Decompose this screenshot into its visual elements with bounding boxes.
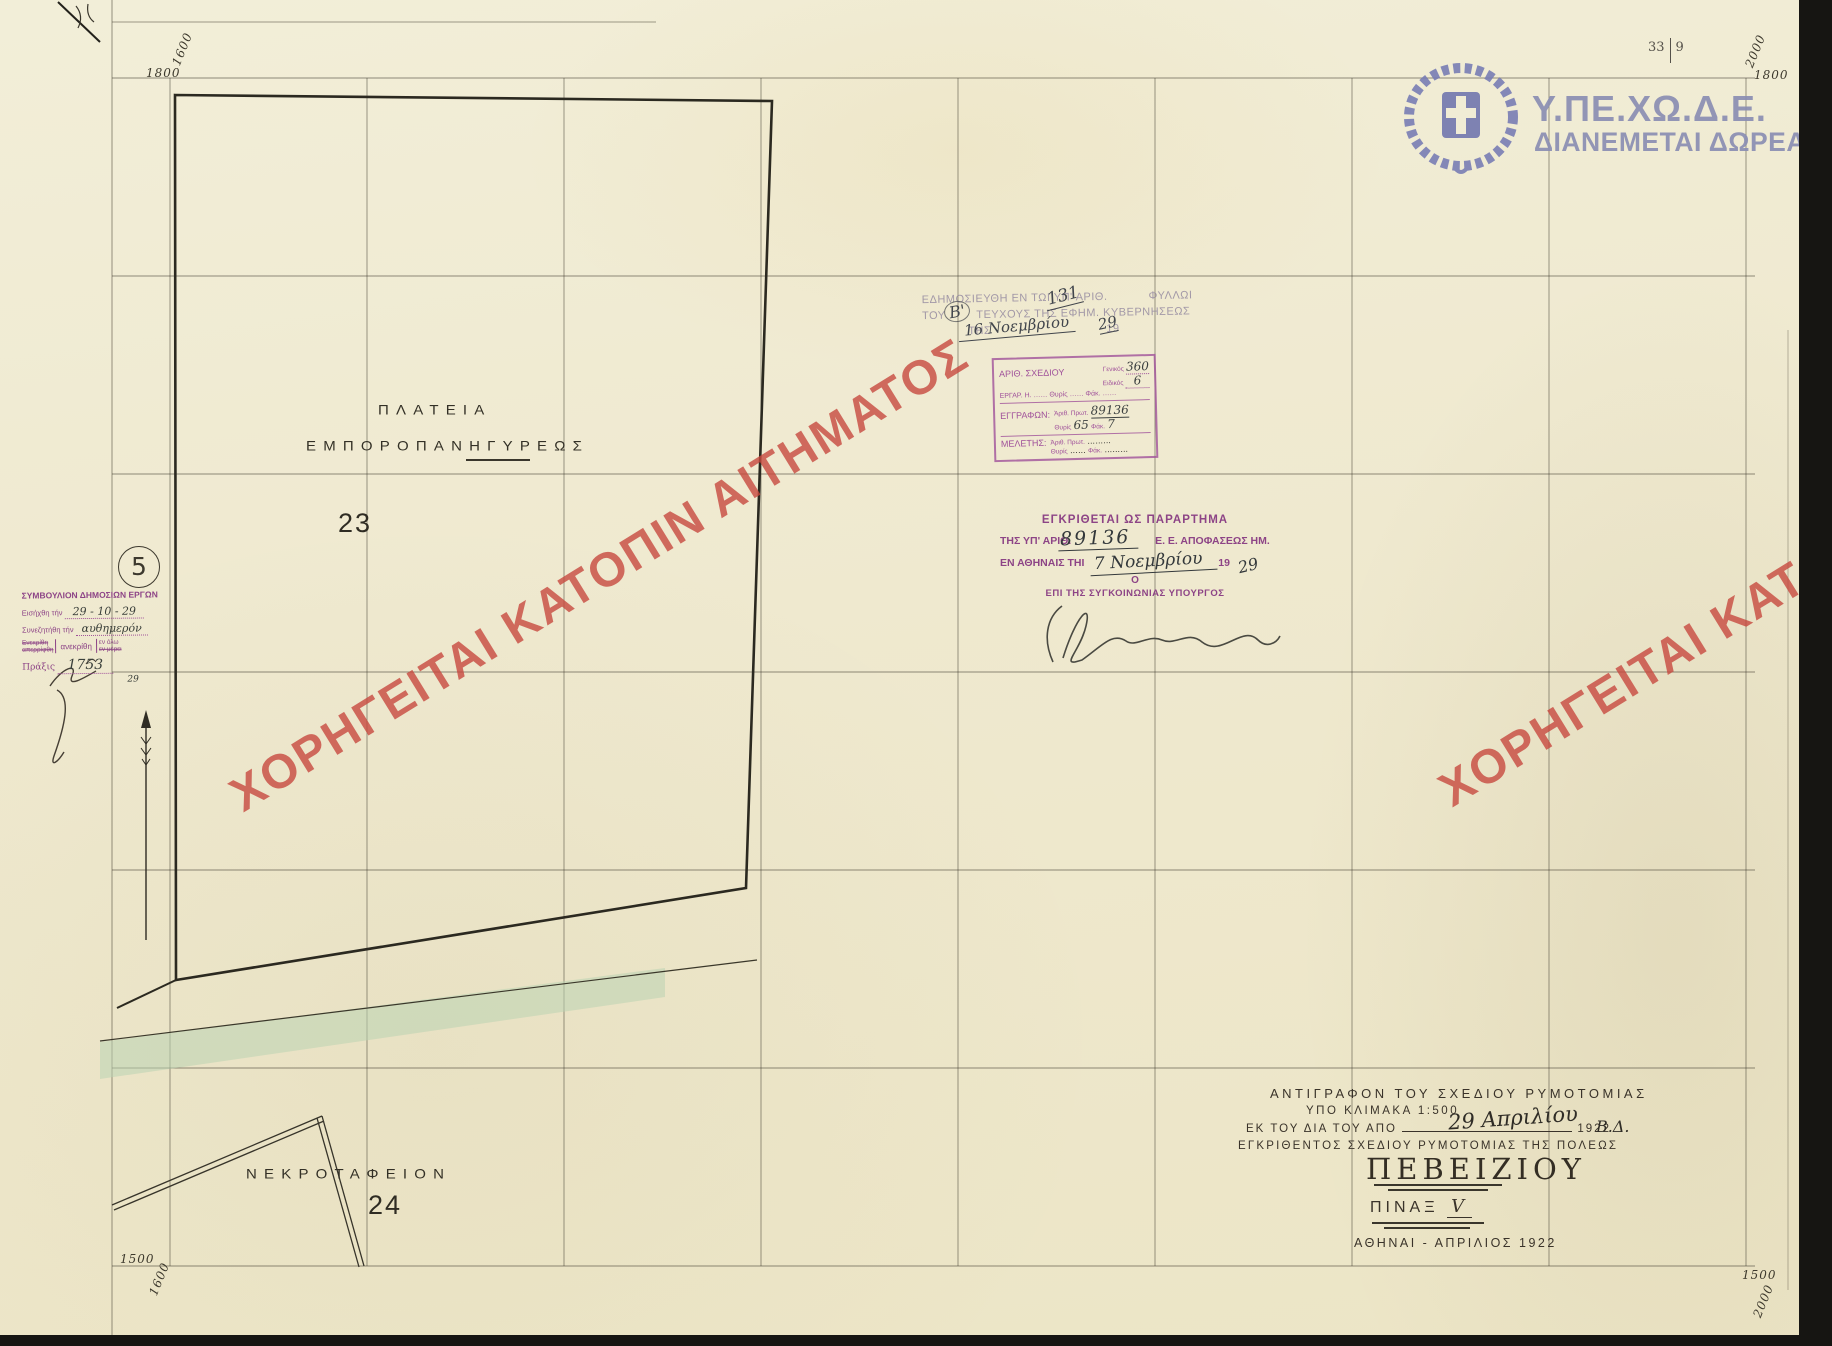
- council-intro-value: 29 - 10 - 29: [65, 605, 145, 620]
- block-23-number: 23: [338, 508, 372, 539]
- registry-thyris-value: 65: [1073, 418, 1089, 432]
- sheet-reference: 339: [1648, 40, 1684, 55]
- council-approved-word: ανεκρίθη: [56, 641, 95, 650]
- sheet-reference-left: 33: [1648, 40, 1665, 55]
- council-discussed-value: αυθημερόν: [76, 621, 148, 636]
- coord-label-bottom-right-north: 1500: [1742, 1268, 1777, 1282]
- paper-sheet: [0, 0, 1800, 1336]
- scan-edge-bottom: [0, 1335, 1832, 1346]
- agency-name: Υ.ΠΕ.ΧΩ.Δ.Ε.: [1532, 88, 1767, 130]
- approval-line5: ΕΠΙ ΤΗΣ ΣΥΓΚΟΙΝΩΝΙΑΣ ΥΠΟΥΡΓΟΣ: [1000, 588, 1270, 599]
- decree-suffix-handwritten: Β.Δ.: [1596, 1117, 1629, 1136]
- city-name: ΠΕΒΕΙΖΙΟΥ: [1366, 1152, 1586, 1186]
- registry-special-label: Ειδικός: [1103, 380, 1124, 388]
- title-block-line1: ΑΝΤΙΓΡΑΦΟΝ ΤΟΥ ΣΧΕΔΙΟΥ ΡΥΜΟΤΟΜΙΑΣ: [1270, 1086, 1648, 1101]
- council-note: 29: [127, 674, 152, 684]
- council-approval-row: Ενεκρίθη απερρίφθη ανεκρίθη εν όλω εν μέ…: [22, 638, 152, 653]
- council-act-value: 1753: [57, 657, 113, 674]
- square-label-line1: ΠΛΑΤΕΙΑ: [378, 403, 491, 419]
- cemetery-label: ΝΕΚΡΟΤΑΦΕΙΟΝ: [246, 1167, 451, 1183]
- council-title: ΣΥΜΒΟΥΛΙΟΝ ΔΗΜΟΣΙΩΝ ΕΡΓΩΝ: [22, 589, 152, 600]
- title-block-footer: ΑΘΗΝΑΙ - ΑΠΡΙΛΙΟΣ 1922: [1354, 1236, 1557, 1250]
- registry-row-study: ΜΕΛΕΤΗΣ: Ἀριθ. Πρωτ. ……… Θυρίς …… Φάκ. ……: [1001, 432, 1151, 457]
- approval-article: Ο: [1000, 575, 1270, 586]
- scan-edge-right: [1799, 0, 1832, 1346]
- registry-row-ergar: ΕΡΓΑΡ. Η. …… Θυρίς …… Φάκ. ……: [1000, 389, 1150, 400]
- coord-label-top-right-north: 1800: [1754, 68, 1789, 82]
- registry-plan-number-label: ΑΡΙΘ. ΣΧΕΔΙΟΥ: [999, 361, 1065, 391]
- block-24-number: 24: [368, 1190, 402, 1221]
- approval-decision-number-handwritten: 89136: [1058, 526, 1139, 552]
- sheet-reference-right: 9: [1670, 38, 1684, 63]
- registry-fak-value: 7: [1107, 417, 1115, 431]
- title-block-line4: ΕΓΚΡΙΘΕΝΤΟΣ ΣΧΕΔΙΟΥ ΡΥΜΟΤΟΜΙΑΣ ΤΗΣ ΠΟΛΕΩ…: [1238, 1140, 1618, 1152]
- council-act-row: Πράξις 1753: [22, 656, 152, 673]
- coord-label-top-left-north: 1800: [146, 66, 181, 80]
- scanned-map-sheet: { "sheet_ref": {"left": "33", "right": "…: [0, 0, 1832, 1346]
- agency-tagline: ΔΙΑΝΕΜΕΤΑΙ ΔΩΡΕΑΝ: [1534, 127, 1826, 158]
- council-stamp: ΣΥΜΒΟΥΛΙΟΝ ΔΗΜΟΣΙΩΝ ΕΡΓΩΝ Εισήχθη τήν 29…: [22, 589, 153, 685]
- council-intro-row: Εισήχθη τήν 29 - 10 - 29: [22, 604, 152, 618]
- publication-year-handwritten: 29: [1096, 312, 1119, 335]
- registry-documents-label: ΕΓΓΡΑΦΩΝ:: [1000, 405, 1051, 434]
- title-block-line2: ΥΠΟ ΚΛΙΜΑΚΑ 1:500: [1306, 1105, 1459, 1117]
- plate-underline-1: [1372, 1222, 1484, 1224]
- square-label-underline: [466, 459, 530, 461]
- registry-row-documents: ΕΓΓΡΑΦΩΝ: Ἀριθ. Πρωτ. 89136 Θυρίς 65 Φάκ…: [1000, 399, 1151, 434]
- registry-general-label: Γενικός: [1103, 366, 1124, 374]
- registry-study-label: ΜΕΛΕΤΗΣ:: [1001, 438, 1047, 457]
- city-underline-1: [1374, 1184, 1502, 1186]
- registry-row-plan-number: ΑΡΙΘ. ΣΧΕΔΙΟΥ Γενικός 360 Ειδικός 6: [999, 359, 1150, 391]
- coord-label-bottom-left-north: 1500: [120, 1252, 155, 1266]
- plate-underline-2: [1384, 1227, 1470, 1229]
- item-number-badge: 5: [118, 546, 160, 588]
- council-discussed-row: Συνεζητήθη τήν αυθημερόν: [22, 621, 152, 635]
- square-label-line2: ΕΜΠΟΡΟΠΑΝΗΓΥΡΕΩΣ: [306, 439, 589, 455]
- registry-stamp: ΑΡΙΘ. ΣΧΕΔΙΟΥ Γενικός 360 Ειδικός 6 ΕΡΓΑ…: [992, 354, 1159, 462]
- approval-line1: ΕΓΚΡΙΘΕΤΑΙ ΩΣ ΠΑΡΑΡΤΗΜΑ: [1000, 514, 1270, 526]
- plate-number: V: [1447, 1196, 1472, 1218]
- city-underline-2: [1388, 1189, 1488, 1191]
- plate-line: ΠΙΝΑΞ V: [1370, 1196, 1472, 1217]
- registry-special-value: 6: [1125, 373, 1149, 389]
